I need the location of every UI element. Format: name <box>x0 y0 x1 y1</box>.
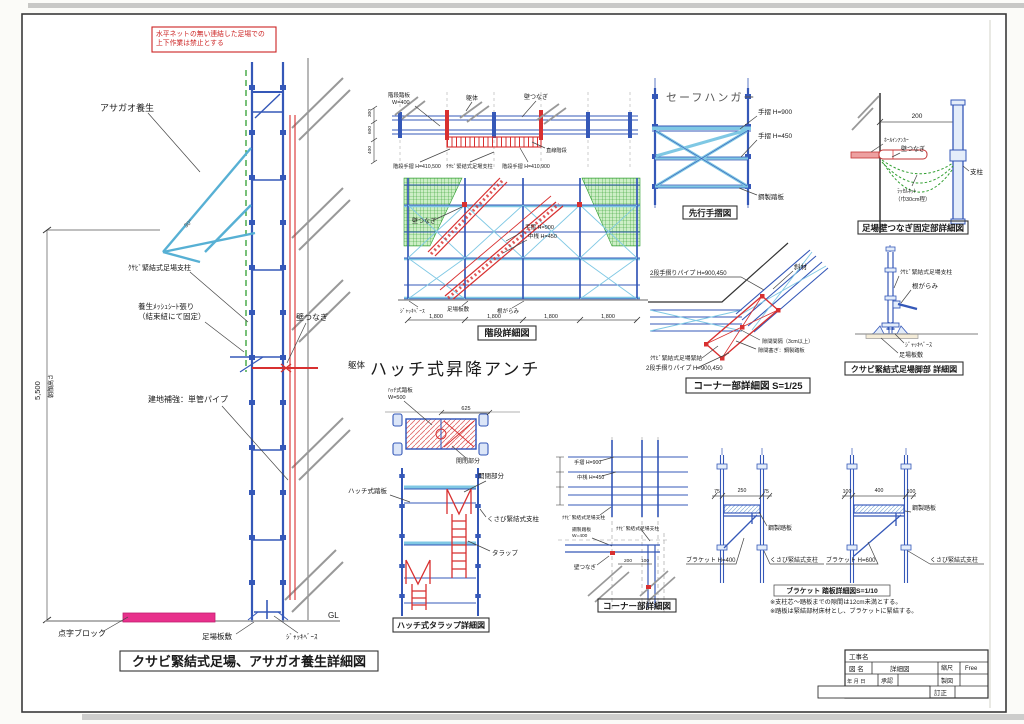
cp-red2 <box>646 585 651 589</box>
hatch-plan-fumiita-2: W=500 <box>388 395 406 401</box>
hatch-plan-kaihei: 開閉部分 <box>456 457 480 465</box>
tie-dot-2 <box>577 202 582 207</box>
stair-plank <box>447 137 541 147</box>
walltie-label: 壁つなぎ <box>296 312 328 322</box>
ba-d1: 75 <box>714 489 720 495</box>
dim-1800-4: 1,800 <box>601 314 615 320</box>
cp-tesuri: 手摺 H=900 <box>574 458 601 466</box>
tb-shukushaku-label: 縮尺 <box>941 664 953 672</box>
ba-bracket: ブラケット H=400 <box>686 556 736 564</box>
elev-tesuri: 手摺 H=900 <box>525 223 554 231</box>
bb-bracket: ブラケット H=600 <box>826 556 876 564</box>
bb-d2: 400 <box>875 488 884 494</box>
hokyo-label: 建地補強：単管パイプ <box>148 394 228 404</box>
tb-date: 年 月 日 <box>847 677 865 685</box>
stair-tie-label: 壁つなぎ <box>524 93 548 101</box>
ba-fumiita: 鋼製踏板 <box>768 524 792 532</box>
leg-plank <box>866 334 918 339</box>
cp-dim200: 200 <box>624 558 632 564</box>
c25-gap1: 隙間間隔（3cm以上） <box>762 337 813 345</box>
tb-zumei-label: 図 名 <box>849 664 864 673</box>
c25-shazai: 斜材 <box>794 262 808 271</box>
leg-caption: クサビ緊結式足場脚部 詳細図 <box>851 364 957 374</box>
ladder-fumiita: ハッチ式踏板 <box>348 486 388 495</box>
kutai-label: 躯体 <box>348 360 366 370</box>
stair-post-center: ｸｻﾋﾞ緊結式足場支柱 <box>446 162 493 170</box>
dim-1800-1: 1,800 <box>429 314 443 320</box>
hanger-title: セーフハンガー <box>666 91 756 104</box>
dim-1800-3: 1,800 <box>544 314 558 320</box>
cp-shichu1: ｸｻﾋﾞ緊結式足場支柱 <box>562 514 605 521</box>
gl-label: GL <box>328 611 339 620</box>
warning-line2: 上下作業は禁止とする <box>156 38 224 47</box>
asagao-label: アサガオ養生 <box>100 102 154 113</box>
hanger-t900: 手摺 H=900 <box>758 107 793 116</box>
ladder-tarap: タラップ <box>492 548 519 557</box>
mesh-label-2: （結束紐にて固定） <box>138 311 206 321</box>
warning-line1: 水平ネットの無い連結した足場での <box>156 29 265 38</box>
height-dim-label: 朝顔高さ <box>47 374 55 398</box>
cp-red1 <box>610 551 615 555</box>
jackbase-label: ｼﾞｬｯｷﾍﾞｰｽ <box>286 633 318 641</box>
wt-dim-value: 200 <box>912 113 923 120</box>
drawing-sheet: 水平ネットの無い連結した足場での 上下作業は禁止とする <box>0 0 1024 724</box>
wt-post-label: 支柱 <box>970 167 984 176</box>
c25-pipe-bottom: 2段手摺りパイプ H=900,450 <box>646 364 723 372</box>
tb-koujimei: 工事名 <box>849 652 869 661</box>
ba-shichu: くさび緊結式支柱 <box>770 556 818 564</box>
ladder-caption: ハッチ式タラップ詳細図 <box>397 620 485 630</box>
cp-dim100: 100 <box>641 558 649 564</box>
stair-rail-left: 階段手摺 H=410,500 <box>393 162 441 170</box>
wt-anchor-label: ﾎｰﾙｲﾝｱﾝｶｰ <box>884 137 909 144</box>
c25-caption: コーナー部詳細図 S=1/25 <box>693 380 803 392</box>
elev-nakasan: 中桟 H=450 <box>528 232 557 240</box>
tb-zumei-value: 詳細図 <box>890 664 910 673</box>
cp-tie: 壁つなぎ <box>574 563 597 571</box>
main-title: クサビ緊結式足場、アサガオ養生詳細図 <box>132 654 366 669</box>
stair-plank-label-1: 階段踏板 <box>388 91 411 99</box>
wt-post <box>950 100 966 224</box>
stair-plank-label-2: W=400 <box>392 100 410 106</box>
tactile-block <box>123 613 215 622</box>
ba-d2: 250 <box>738 488 747 494</box>
side-dim-1: 300 <box>367 109 373 117</box>
hanger-caption: 先行手摺図 <box>689 208 732 218</box>
leg-ita-label: 足場板敷 <box>899 351 923 359</box>
cp-fumiita1: 鋼製踏板 <box>572 526 591 533</box>
elev-jack: ｼﾞｬｯｷﾍﾞｰｽ <box>400 308 425 315</box>
stair-caption: 階段詳細図 <box>484 327 529 338</box>
height-dim-value: 5,500 <box>33 381 42 400</box>
hatch-plan-dim-value: 625 <box>461 406 470 412</box>
leg-negarami-label: 根がらみ <box>912 281 939 290</box>
wt-net-label-2: （巾30cm程） <box>895 195 930 203</box>
cp-fumiita2: W=400 <box>572 533 588 539</box>
post-label: ｸｻﾋﾞ緊結式足場支柱 <box>128 263 191 272</box>
bracket-note2: ※踏板は緊結部材床材とし、ブラケットに緊結する。 <box>770 607 918 615</box>
stair-rail-right: 階段手摺 H=410,900 <box>502 162 550 170</box>
elev-ita: 足場板敷 <box>447 305 470 313</box>
leg-jack-label: ｼﾞｬｯｷﾍﾞｰｽ <box>905 342 932 349</box>
tenji-label: 点字ブロック <box>58 628 106 638</box>
bracket-caption: ブラケット 踏板詳細図S=1/10 <box>786 586 878 595</box>
hatch-heading: ハッチ式昇降アンチ <box>370 360 540 379</box>
hanger-fumiita: 鋼製踏板 <box>758 192 785 201</box>
tb-teisei: 訂正 <box>934 688 948 697</box>
hanger-t450: 手摺 H=450 <box>758 131 793 140</box>
bb-d3: 100 <box>907 489 916 495</box>
tb-shounin: 承認 <box>881 677 893 685</box>
tb-shukushaku-value: Free <box>965 666 978 672</box>
wt-net-label-1: ﾗｯｾﾙﾈｯﾄ <box>897 188 917 195</box>
side-dim-2: 600 <box>367 126 373 134</box>
bracket-note1: ※支柱芯～踏板までの隙間は12cm未満とする。 <box>770 598 902 606</box>
c25-kinketsu: ｸｻﾋﾞ緊結式足場緊結 <box>650 354 702 362</box>
cp-caption: コーナー部詳細図 <box>603 601 671 611</box>
cp-shichu2: ｸｻﾋﾞ緊結式足場支柱 <box>616 525 659 532</box>
ba-d3: 75 <box>763 489 769 495</box>
tb-seizu: 製図 <box>941 677 953 685</box>
ladder-kaihei: 開閉部分 <box>478 471 505 480</box>
bb-fumiita: 鋼製踏板 <box>912 504 936 512</box>
stair-step-label: 直線階段 <box>546 146 567 154</box>
itajiki-label: 足場板敷 <box>202 631 232 641</box>
hatch-plan-fumiita-1: ﾊｯﾁ式踏板 <box>388 386 413 394</box>
tie-dot-1 <box>462 202 467 207</box>
bb-shichu: くさび緊結式支柱 <box>930 556 978 564</box>
mesh-label-1: 養生ﾒｯｼｭｼｰﾄ張り <box>138 301 194 311</box>
c25-pipe-top: 2段手摺りパイプ H=900,450 <box>650 269 727 277</box>
elev-tie-label: 壁つなぎ <box>412 217 436 225</box>
ladder-shichu: くさび緊結式支柱 <box>487 514 540 523</box>
leg-post-label: ｸｻﾋﾞ緊結式足場支柱 <box>900 268 952 276</box>
side-dim-3: 400 <box>367 146 373 154</box>
wt-tie-label: 壁つなぎ <box>901 145 925 153</box>
stair-kutai-label: 躯体 <box>466 94 478 102</box>
wt-caption: 足場壁つなぎ固定部詳細図 <box>862 223 964 233</box>
c25-gap2: 隙間塞ぎ：鋼製踏板 <box>758 346 806 354</box>
tb-bottom-cell <box>818 686 930 698</box>
cp-nakasan: 中桟 H=450 <box>577 473 604 481</box>
dim-1800-2: 1,800 <box>487 314 501 320</box>
bb-d1: 100 <box>843 489 852 495</box>
